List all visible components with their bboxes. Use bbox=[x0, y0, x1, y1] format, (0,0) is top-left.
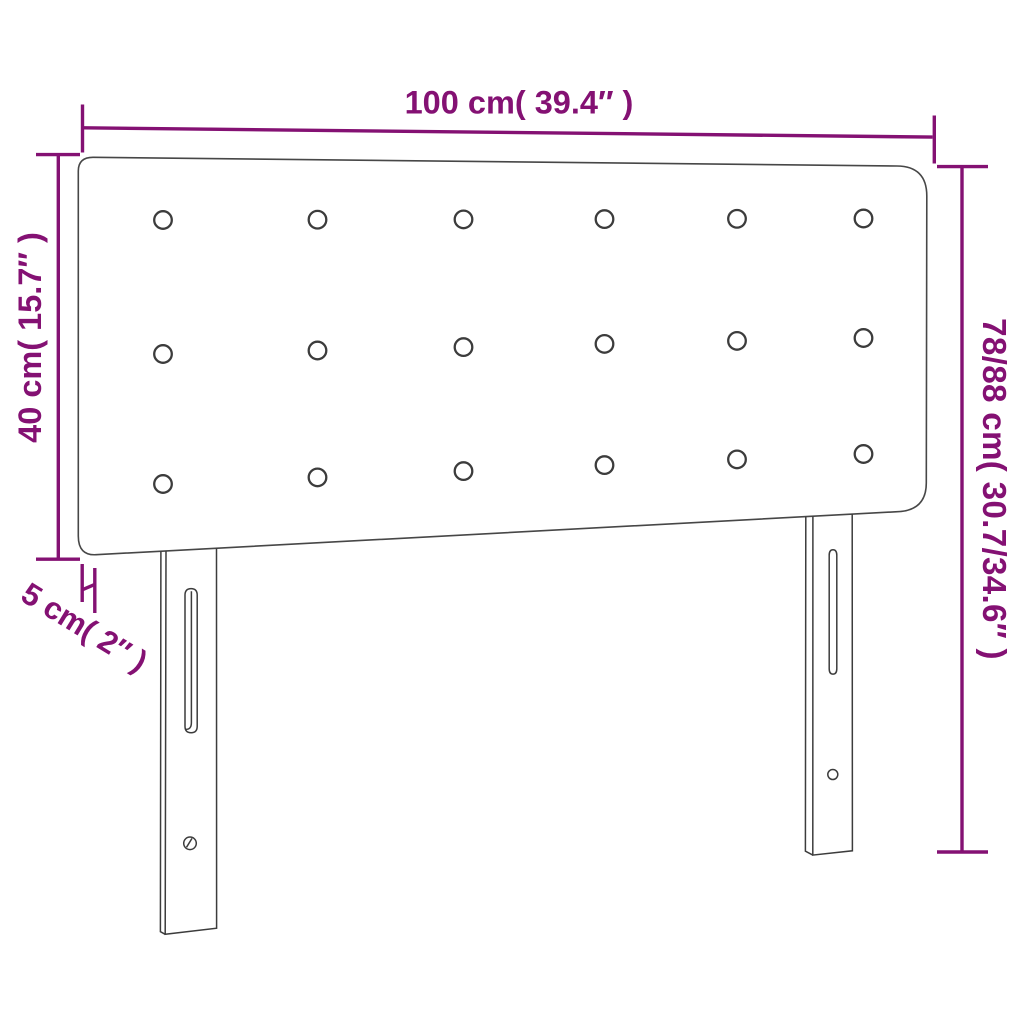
svg-text:78/88 cm( 30.7/34.6″ ): 78/88 cm( 30.7/34.6″ ) bbox=[975, 318, 1012, 660]
svg-text:100 cm( 39.4″ ): 100 cm( 39.4″ ) bbox=[405, 85, 634, 121]
svg-text:40 cm( 15.7″ ): 40 cm( 15.7″ ) bbox=[12, 232, 48, 443]
